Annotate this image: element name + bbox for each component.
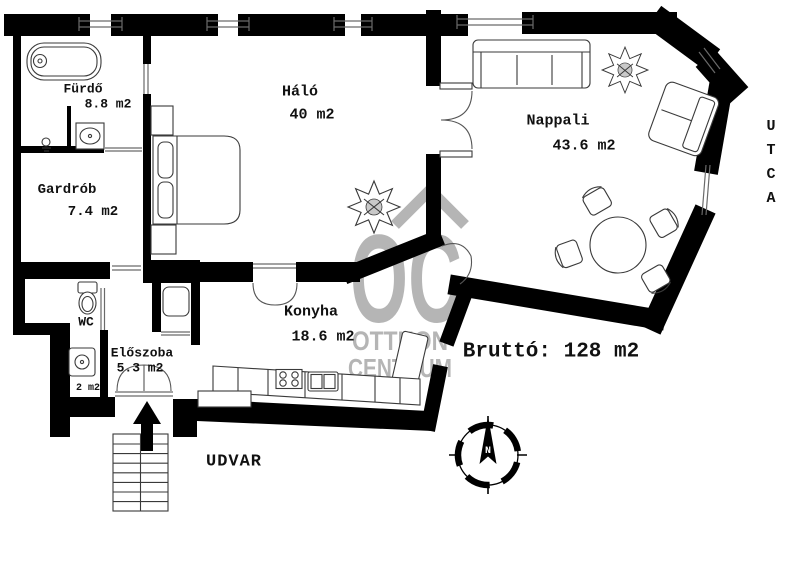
room-area-halo: 40 m2 — [289, 108, 334, 123]
room-label-eloszoba: Előszoba — [111, 347, 173, 360]
room-area-furdo: 8.8 m2 — [85, 98, 132, 111]
wall-gardrob-bottom — [13, 262, 110, 279]
door-closet — [161, 332, 190, 335]
wall-entry-right — [173, 399, 197, 437]
compass-north-label: N — [485, 446, 491, 457]
door-leaf-halo-bottom — [440, 151, 472, 157]
wall-furdo-right-b — [143, 94, 151, 262]
wall-halo-nappali-b — [426, 154, 441, 244]
nightstand-bottom-icon — [151, 225, 176, 254]
bed-icon — [151, 106, 240, 254]
chair-icon — [580, 183, 613, 216]
entrance-sill — [115, 392, 173, 396]
window-nappali-top — [457, 15, 533, 29]
dining-table-icon — [590, 217, 646, 273]
wall-se-lower — [429, 373, 439, 423]
floor-plan-svg: OC OTTHON CENTRUM — [0, 0, 800, 565]
door-arc-halo-nappali — [441, 91, 472, 149]
room-area-konyha: 18.6 m2 — [291, 330, 354, 345]
counter-left-icon — [198, 391, 251, 407]
wall-entry-left — [50, 397, 115, 417]
toilet-icon — [78, 282, 97, 314]
wall-left — [13, 36, 21, 262]
courtyard-label: UDVAR — [206, 454, 262, 471]
room-label-nappali: Nappali — [526, 114, 589, 129]
pillow-icon — [158, 182, 173, 218]
plant-icon — [348, 181, 400, 233]
door-gardrob-eloszoba — [112, 266, 141, 270]
room-area-wc: 2 m2 — [76, 384, 100, 394]
chair-icon — [648, 206, 681, 239]
nightstand-top-icon — [151, 106, 173, 135]
wall-furdo-right-a — [143, 36, 151, 64]
wc-sink-icon — [69, 348, 95, 376]
door-furdo-gardrob — [105, 148, 142, 151]
bathroom-sink-icon — [76, 123, 104, 149]
wall-sw-band — [50, 330, 70, 437]
pillow-icon — [158, 142, 173, 178]
wall-halo-bottom-b — [296, 262, 360, 282]
dining-set-icon — [552, 183, 681, 296]
wall-halo-nappali-a — [426, 10, 441, 86]
door-furdo — [144, 64, 148, 94]
chair-icon — [552, 239, 583, 270]
wall-furdo-stub — [67, 106, 71, 150]
sofa-icon — [473, 40, 590, 88]
stove-icon — [276, 370, 302, 389]
room-area-gardrob: 7.4 m2 — [68, 205, 118, 219]
door-arc-halo-konyha — [253, 283, 297, 305]
room-area-eloszoba: 5.3 m2 — [117, 362, 164, 375]
room-label-furdo: Fürdő — [63, 83, 102, 96]
gross-area-label: Bruttó: 128 m2 — [463, 342, 639, 363]
room-label-konyha: Konyha — [284, 305, 338, 320]
floor-plan-page: OC OTTHON CENTRUM — [0, 0, 800, 565]
wall-closet-right — [191, 283, 200, 345]
wall-wc-eloszoba — [100, 330, 108, 397]
room-area-nappali: 43.6 m2 — [552, 139, 615, 154]
kitchen-sink-icon — [308, 372, 338, 391]
wall-tr-corner — [664, 24, 702, 52]
room-label-halo: Háló — [282, 85, 318, 100]
bathtub-icon — [27, 43, 101, 80]
wall-halo-bottom-a — [143, 262, 253, 282]
room-label-wc: WC — [78, 316, 94, 329]
wall-closet-left — [152, 283, 161, 332]
door-halo-konyha-lines — [253, 264, 296, 268]
room-label-gardrob: Gardrób — [38, 183, 97, 197]
plant-icon — [602, 47, 648, 93]
window-street-2 — [702, 165, 710, 215]
street-label: UTCA — [764, 118, 779, 214]
wall-nappali-bottom — [459, 286, 655, 319]
stairs-icon — [113, 434, 168, 511]
shower-tray-icon — [163, 287, 189, 316]
door-leaf-halo-top — [440, 83, 472, 89]
compass-icon: N — [449, 416, 527, 494]
door-wc — [101, 288, 105, 330]
